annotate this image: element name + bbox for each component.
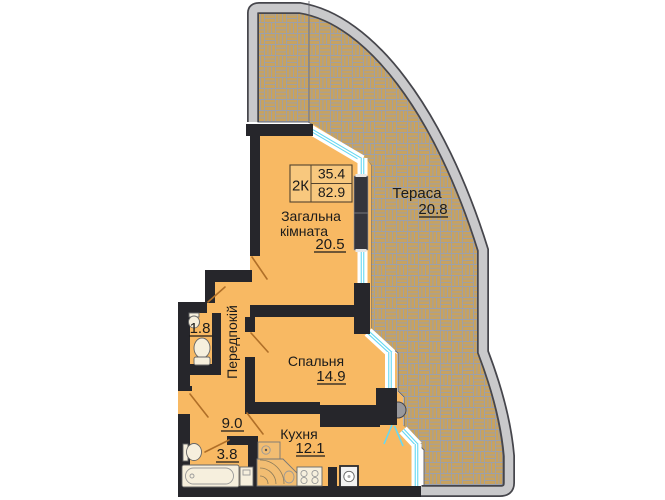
- wall-right-pier: [354, 283, 370, 334]
- toilet-icon: [194, 338, 210, 365]
- hallway-label: Передпокій: [224, 305, 240, 379]
- terrace-label: Тераса: [392, 185, 442, 202]
- wall-bay-corner: [376, 388, 397, 425]
- wall-bottom: [178, 486, 421, 497]
- kitchen-area: 12.1: [295, 440, 324, 457]
- stove-icon: [297, 467, 322, 486]
- bathroom-area: 3.8: [217, 446, 238, 463]
- unit-type-label: 2К: [292, 178, 309, 195]
- terrace-area: 20.8: [418, 201, 447, 218]
- bedroom-label: Спальня: [288, 353, 344, 369]
- wall-kitchen-stub: [328, 467, 337, 486]
- bathtub-icon: [182, 465, 239, 487]
- floor-plan-page: 2К 35.4 82.9 Загальна кімната 20.5 Терас…: [0, 0, 665, 500]
- wall-kitchen-top: [320, 405, 380, 427]
- unit-info-box: 2К 35.4 82.9: [290, 165, 352, 202]
- living-room-label-1: Загальна: [281, 208, 341, 224]
- window-frame-cap: [356, 174, 367, 177]
- unit-total-area: 82.9: [318, 184, 345, 200]
- floor-plan: 2К 35.4 82.9 Загальна кімната 20.5 Терас…: [0, 0, 665, 500]
- wall-bedroom-left-a: [245, 317, 255, 332]
- wall-living-bedroom: [250, 305, 358, 317]
- entrance-door-jamb: [178, 386, 192, 391]
- window-frame-cap: [356, 249, 367, 252]
- living-room-area: 20.5: [315, 236, 344, 253]
- wall-living-left: [250, 124, 260, 256]
- unit-living-area: 35.4: [318, 166, 345, 182]
- wall-left-upper: [178, 302, 190, 390]
- wc-area: 1.8: [190, 320, 211, 337]
- wall-bedroom-left-b: [245, 357, 255, 402]
- hallway-area: 9.0: [222, 415, 243, 432]
- bedroom-area: 14.9: [316, 368, 345, 385]
- wall-bath-top: [227, 436, 258, 445]
- wall-bedroom-bottom: [245, 402, 320, 414]
- washbasin-icon: [183, 444, 202, 462]
- washing-machine-icon: [340, 466, 358, 487]
- bath-cabinet-icon: [240, 467, 253, 486]
